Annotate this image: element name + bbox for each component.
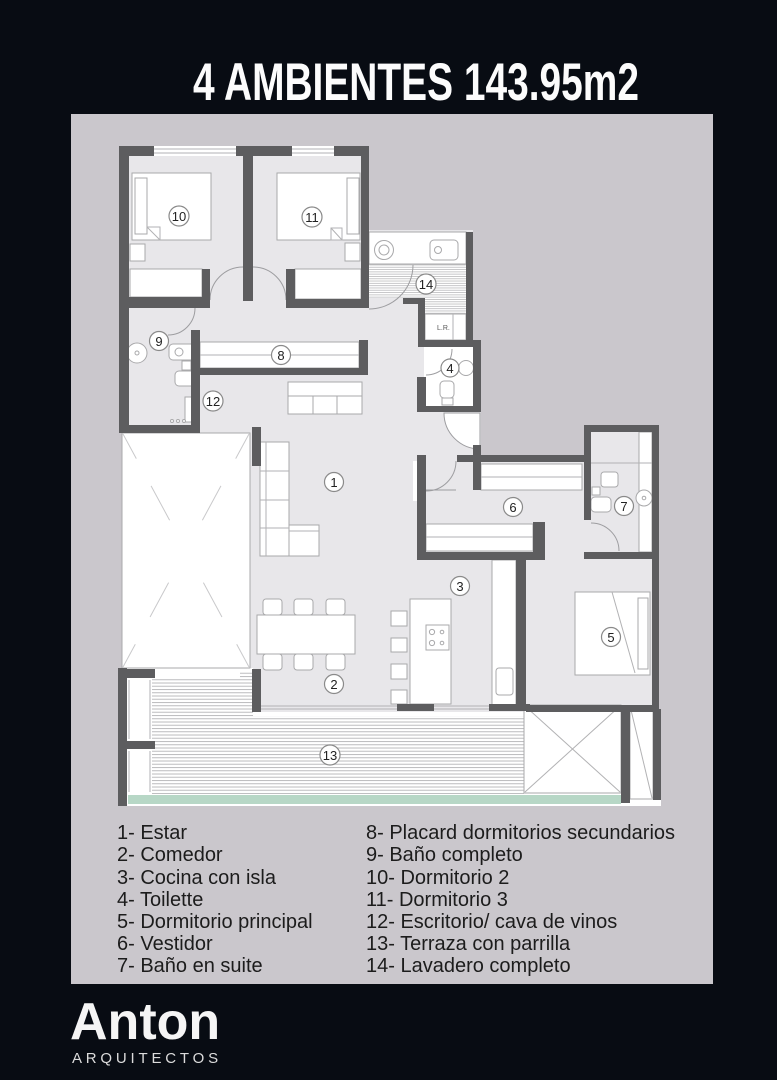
svg-text:14: 14 bbox=[419, 277, 433, 292]
svg-text:10- Dormitorio 2: 10- Dormitorio 2 bbox=[366, 867, 509, 889]
svg-text:L.R.: L.R. bbox=[437, 325, 450, 332]
svg-text:1- Estar: 1- Estar bbox=[117, 822, 187, 844]
svg-text:6: 6 bbox=[509, 500, 516, 515]
svg-text:13- Terraza con parrilla: 13- Terraza con parrilla bbox=[366, 933, 571, 955]
svg-text:10: 10 bbox=[172, 209, 186, 224]
svg-text:9- Baño completo: 9- Baño completo bbox=[366, 844, 523, 866]
svg-text:13: 13 bbox=[323, 748, 337, 763]
svg-text:3- Cocina con isla: 3- Cocina con isla bbox=[117, 867, 277, 889]
svg-text:12- Escritorio/ cava de vinos: 12- Escritorio/ cava de vinos bbox=[366, 911, 617, 933]
svg-text:4- Toilette: 4- Toilette bbox=[117, 889, 203, 911]
svg-text:4: 4 bbox=[446, 361, 453, 376]
svg-text:12: 12 bbox=[206, 394, 220, 409]
svg-text:5- Dormitorio principal: 5- Dormitorio principal bbox=[117, 911, 313, 933]
svg-text:8- Placard dormitorios secunda: 8- Placard dormitorios secundarios bbox=[366, 822, 675, 844]
svg-text:6- Vestidor: 6- Vestidor bbox=[117, 933, 213, 955]
svg-text:11- Dormitorio 3: 11- Dormitorio 3 bbox=[366, 889, 508, 911]
svg-text:4 AMBIENTES 143.95m2: 4 AMBIENTES 143.95m2 bbox=[193, 53, 639, 112]
svg-text:ARQUITECTOS: ARQUITECTOS bbox=[72, 1050, 222, 1067]
svg-text:5: 5 bbox=[607, 630, 614, 645]
svg-text:Anton: Anton bbox=[70, 993, 220, 1051]
svg-text:7- Baño en suite: 7- Baño en suite bbox=[117, 955, 263, 977]
svg-text:2: 2 bbox=[330, 677, 337, 692]
svg-text:14- Lavadero completo: 14- Lavadero completo bbox=[366, 955, 571, 977]
svg-text:11: 11 bbox=[305, 210, 319, 225]
svg-text:9: 9 bbox=[155, 334, 162, 349]
svg-text:2- Comedor: 2- Comedor bbox=[117, 844, 223, 866]
svg-text:3: 3 bbox=[456, 579, 463, 594]
svg-text:7: 7 bbox=[620, 499, 627, 514]
svg-text:8: 8 bbox=[277, 348, 284, 363]
svg-text:1: 1 bbox=[330, 475, 337, 490]
